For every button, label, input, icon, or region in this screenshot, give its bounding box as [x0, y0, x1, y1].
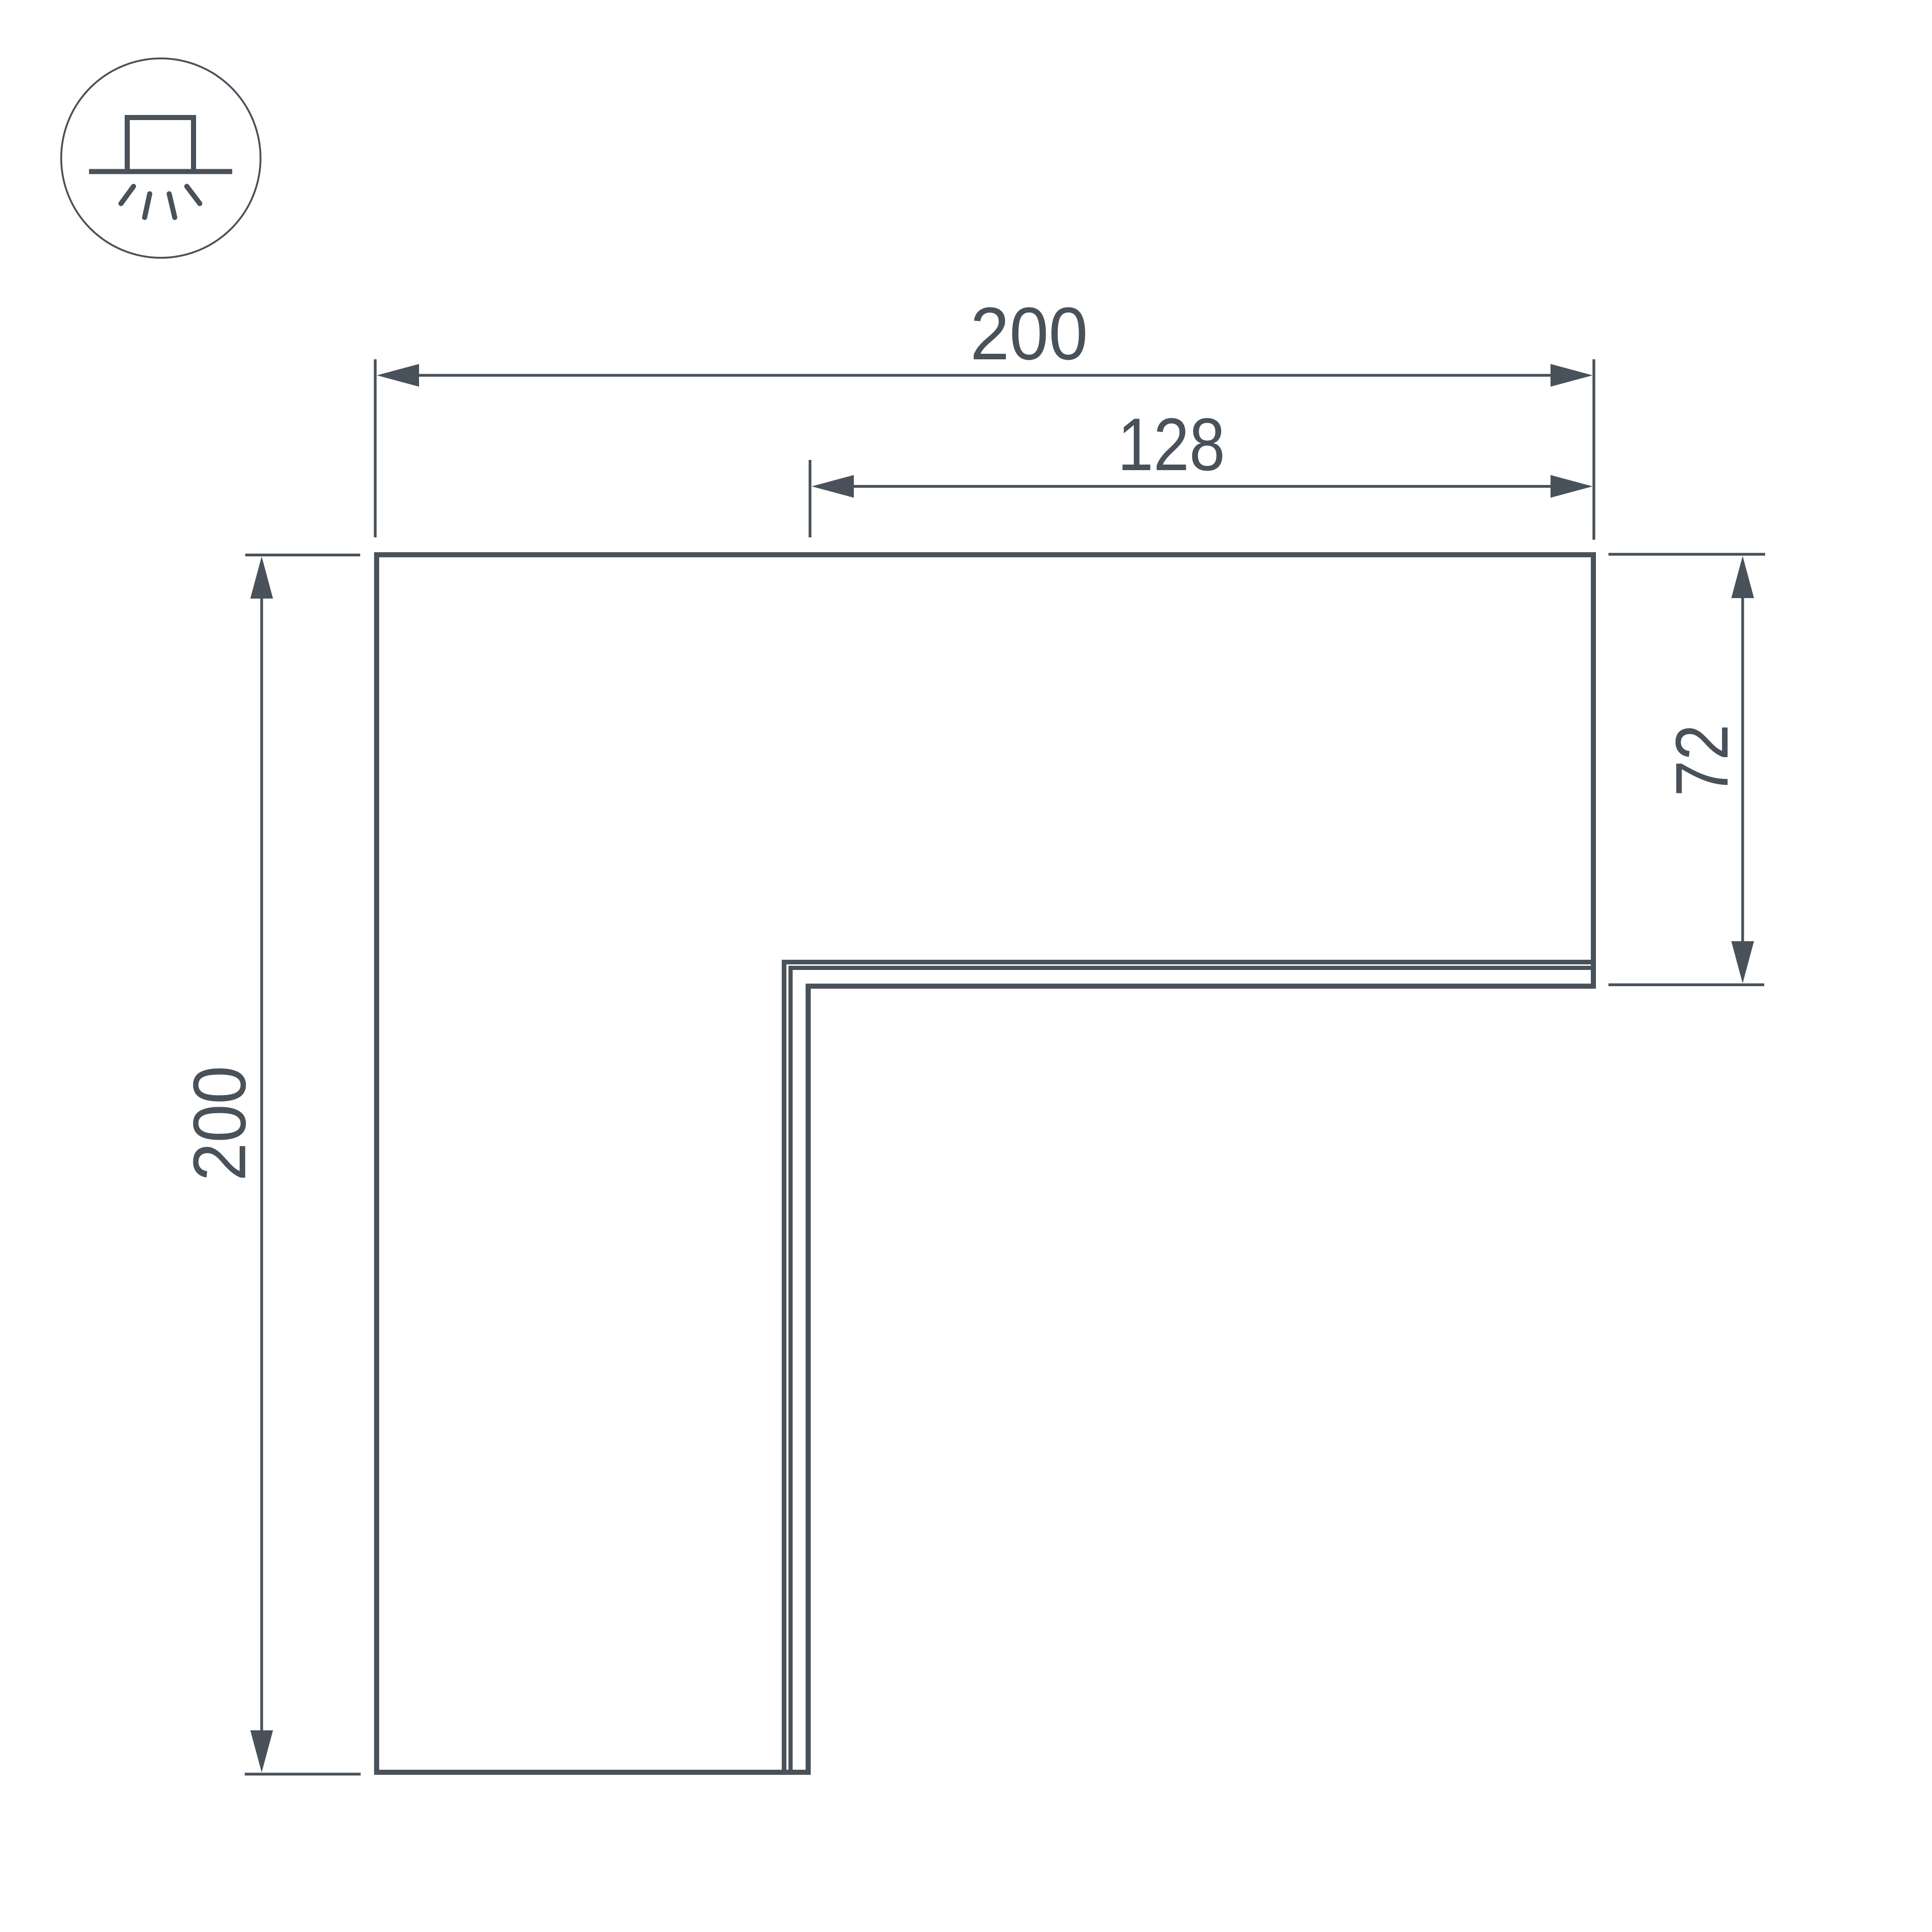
svg-text:200: 200 [178, 1066, 261, 1181]
svg-text:200: 200 [970, 292, 1088, 376]
svg-text:72: 72 [1660, 724, 1744, 797]
svg-text:128: 128 [1118, 403, 1225, 486]
